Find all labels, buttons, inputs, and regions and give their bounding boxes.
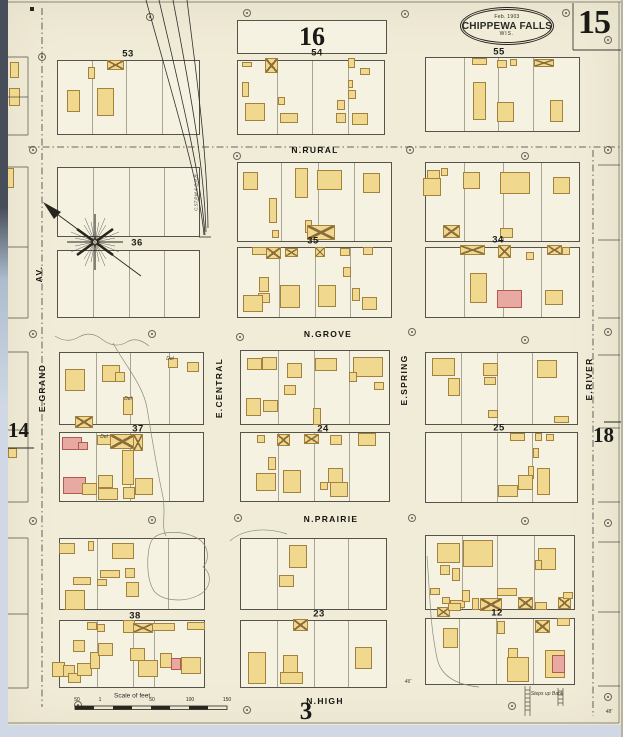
block-number-53: 53	[122, 49, 134, 60]
frame-building	[257, 435, 265, 443]
corner-marker-icon	[146, 13, 154, 21]
frame-building	[328, 468, 343, 483]
block-number-25: 25	[493, 423, 505, 434]
outbuilding-x	[547, 245, 562, 255]
brick-building	[78, 442, 88, 450]
frame-building	[472, 598, 479, 610]
outbuilding-x	[443, 225, 460, 238]
frame-building	[498, 485, 518, 497]
frame-building	[269, 198, 277, 223]
frame-building	[545, 290, 563, 305]
lot-line	[464, 248, 465, 317]
outbuilding-x	[133, 623, 153, 633]
sheet-number: 15	[578, 4, 610, 42]
frame-building	[247, 358, 262, 370]
frame-building	[330, 482, 348, 497]
lot-line	[461, 353, 462, 424]
corner-marker-icon	[406, 146, 414, 154]
outbuilding-x	[304, 434, 319, 444]
corner-marker-icon	[562, 9, 570, 17]
frame-building	[463, 540, 493, 567]
outbuilding-x	[498, 245, 511, 258]
lot-line	[164, 168, 165, 236]
lot-line	[532, 353, 533, 424]
frame-building	[348, 58, 355, 68]
frame-building	[443, 628, 458, 648]
lot-line	[541, 248, 542, 317]
lot-line	[459, 619, 460, 684]
frame-building	[497, 102, 514, 122]
brick-building	[552, 655, 565, 673]
corner-marker-icon	[401, 10, 409, 18]
street-label-n-rural: N.RURAL	[291, 145, 338, 155]
frame-building	[363, 173, 380, 193]
frame-building	[259, 277, 269, 292]
lot-line	[314, 621, 315, 687]
frame-building	[343, 267, 351, 277]
frame-building	[98, 475, 113, 488]
corner-marker-icon	[521, 152, 529, 160]
block-number-37: 37	[132, 424, 144, 435]
dwelling-note: Del	[124, 396, 132, 402]
frame-building	[430, 588, 440, 595]
frame-building	[352, 288, 360, 301]
frame-building	[473, 82, 486, 120]
block-number-35: 35	[307, 236, 319, 247]
street-label-e-spring: E.SPRING	[399, 354, 409, 405]
frame-building	[510, 433, 525, 441]
outbuilding-x	[266, 247, 281, 259]
frame-building	[278, 97, 285, 105]
frame-building	[360, 68, 370, 75]
frame-building	[374, 382, 384, 390]
lot-line	[164, 251, 165, 317]
map-state: WIS.	[500, 32, 515, 38]
outbuilding-x	[293, 619, 308, 631]
lot-line	[277, 539, 278, 609]
frame-building	[246, 398, 261, 416]
frame-building	[87, 622, 97, 630]
frame-building	[289, 545, 307, 568]
outbuilding-x	[107, 60, 124, 70]
outbuilding-x	[534, 59, 554, 67]
frame-building	[256, 473, 276, 491]
frame-building	[8, 448, 17, 458]
street-label-e-grand: E.GRAND	[37, 364, 47, 412]
block-number-23: 23	[313, 609, 325, 620]
lot-line	[277, 621, 278, 687]
frame-building	[553, 177, 570, 194]
frame-building	[73, 577, 91, 585]
corner-marker-icon	[148, 330, 156, 338]
lot-line	[354, 163, 355, 241]
scale-caption: Scale of feet.	[114, 693, 152, 700]
frame-building	[287, 363, 302, 378]
dimension-note: 48'	[606, 709, 613, 715]
frame-building	[497, 588, 517, 596]
corner-marker-icon	[604, 519, 612, 527]
frame-building	[9, 88, 20, 106]
outbuilding-x	[265, 58, 278, 73]
lot-line	[533, 58, 534, 131]
outbuilding-x	[110, 434, 135, 449]
lot-line	[349, 433, 350, 501]
lot-line	[93, 251, 94, 317]
frame-building	[122, 450, 134, 485]
block-number-34: 34	[492, 235, 504, 246]
frame-building	[537, 360, 557, 378]
frame-building	[268, 457, 276, 470]
lot-line	[350, 248, 351, 317]
frame-building	[315, 358, 337, 371]
scale-tick: 50	[74, 697, 80, 703]
frame-building	[67, 90, 80, 112]
frame-building	[125, 568, 135, 578]
outbuilding-x	[315, 247, 325, 257]
frame-building	[112, 543, 134, 559]
corner-marker-icon	[233, 152, 241, 160]
frame-building	[349, 372, 357, 382]
lot-line	[162, 61, 163, 134]
corner-marker-icon	[236, 333, 244, 341]
lot-line	[348, 621, 349, 687]
adjacent-sheet-top: 16	[299, 22, 325, 52]
lot-line	[315, 248, 316, 317]
street-label-n-prairie: N.PRAIRIE	[304, 514, 359, 524]
frame-building	[535, 560, 542, 570]
frame-building	[355, 647, 372, 669]
frame-building	[484, 377, 496, 385]
lot-line	[349, 351, 350, 424]
adjacent-sheet-bottom: 3	[300, 698, 313, 726]
outbuilding-x	[535, 620, 550, 633]
frame-building	[317, 170, 342, 190]
frame-building	[550, 100, 563, 122]
outbuilding-x	[75, 416, 93, 428]
frame-building	[82, 483, 97, 495]
frame-building	[272, 230, 279, 238]
lot-line	[348, 539, 349, 609]
block-number-55: 55	[493, 47, 505, 58]
corner-marker-icon	[38, 53, 46, 61]
sheet-edge-bottom	[0, 725, 623, 737]
outbuilding-x	[277, 434, 290, 446]
frame-building	[448, 378, 460, 396]
lot-line	[281, 163, 282, 241]
lot-line	[97, 539, 98, 609]
frame-building	[348, 90, 356, 99]
frame-building	[563, 592, 573, 599]
frame-building	[497, 621, 505, 634]
lot-line	[312, 61, 313, 134]
brick-building	[171, 658, 181, 670]
frame-building	[262, 357, 277, 370]
frame-building	[126, 582, 139, 597]
frame-building	[537, 468, 550, 495]
street-label-e-river: E.RIVER	[584, 357, 594, 400]
adjacent-sheet-left: 14	[8, 418, 29, 443]
frame-building	[295, 168, 308, 198]
frame-building	[115, 372, 125, 382]
scale-tick: 100	[186, 697, 194, 703]
frame-building	[245, 103, 265, 121]
frame-building	[432, 358, 455, 376]
frame-building	[313, 408, 321, 425]
corner-marker-icon	[29, 146, 37, 154]
frame-building	[488, 410, 498, 418]
outbuilding-x	[460, 245, 485, 255]
lot-line	[93, 168, 94, 236]
frame-building	[535, 602, 547, 610]
frame-building	[320, 482, 328, 490]
scale-tick: 150	[223, 697, 231, 703]
frame-building	[452, 568, 460, 581]
steps-note: Steps up Bank	[531, 691, 564, 697]
frame-building	[441, 168, 448, 176]
frame-building	[557, 618, 570, 626]
corner-marker-icon	[29, 517, 37, 525]
block-outline-36	[57, 250, 200, 318]
frame-building	[97, 624, 105, 632]
frame-building	[348, 80, 353, 88]
street-label-n-grove: N.GROVE	[304, 329, 352, 339]
frame-building	[352, 113, 368, 125]
frame-building	[97, 88, 114, 116]
frame-building	[500, 172, 530, 194]
frame-building	[463, 172, 480, 189]
frame-building	[353, 357, 383, 377]
frame-building	[318, 285, 336, 307]
lot-line	[168, 539, 169, 609]
frame-building	[243, 295, 263, 312]
scale-tick: 1	[99, 697, 102, 703]
frame-building	[280, 672, 303, 684]
frame-building	[187, 362, 199, 372]
street-label-e-central: E.CENTRAL	[214, 358, 224, 418]
corner-marker-icon	[408, 328, 416, 336]
frame-building	[462, 590, 470, 602]
frame-building	[138, 660, 158, 677]
frame-building	[123, 487, 135, 499]
frame-building	[497, 60, 507, 68]
frame-building	[358, 433, 376, 446]
frame-building	[363, 247, 373, 255]
frame-building	[437, 543, 460, 563]
corner-marker-icon	[243, 9, 251, 17]
frame-building	[283, 470, 301, 493]
lot-line	[464, 58, 465, 131]
frame-building	[135, 478, 153, 495]
frame-building	[242, 62, 252, 67]
frame-building	[470, 273, 487, 303]
frame-building	[65, 369, 85, 391]
corner-marker-icon	[521, 336, 529, 344]
block-number-36: 36	[131, 238, 143, 249]
lot-line	[278, 351, 279, 424]
frame-building	[280, 285, 300, 308]
frame-building	[65, 590, 85, 610]
corner-marker-icon	[604, 146, 612, 154]
frame-building	[526, 252, 534, 260]
frame-building	[73, 640, 85, 652]
frame-building	[423, 178, 441, 196]
block-number-24: 24	[317, 424, 329, 435]
frame-building	[242, 82, 249, 97]
corner-marker-icon	[604, 693, 612, 701]
corner-marker-icon	[604, 328, 612, 336]
sanborn-map-sheet: 535455363534372425382312N.RURALN.GROVEN.…	[0, 0, 623, 737]
corner-marker-icon	[148, 516, 156, 524]
frame-building	[554, 416, 569, 423]
frame-building	[337, 100, 345, 110]
frame-building	[507, 657, 529, 682]
lot-line	[533, 619, 534, 684]
frame-building	[336, 113, 346, 123]
block-outline-36	[57, 167, 200, 237]
railroad-label: C.ST.P.M.& O.R.R.	[194, 173, 199, 211]
corner-marker-icon	[408, 514, 416, 522]
dimension-note: 46'	[405, 679, 412, 685]
frame-building	[10, 62, 19, 78]
frame-building	[330, 435, 342, 445]
lot-line	[534, 536, 535, 609]
frame-building	[535, 433, 542, 441]
lot-line	[169, 433, 170, 501]
frame-building	[472, 58, 487, 65]
frame-building	[88, 67, 95, 79]
map-city: CHIPPEWA FALLS	[462, 21, 552, 32]
lot-line	[96, 353, 97, 424]
lot-line	[129, 251, 130, 317]
map-date: Feb. 1903	[494, 15, 519, 21]
dwelling-note: Del	[100, 434, 108, 440]
frame-building	[263, 400, 278, 412]
corner-marker-icon	[521, 517, 529, 525]
frame-building	[518, 475, 533, 490]
outbuilding-x	[285, 248, 298, 257]
street-label-av: AV.	[34, 266, 44, 283]
frame-building	[187, 622, 205, 630]
lot-line	[314, 539, 315, 609]
outbuilding-x	[133, 434, 143, 451]
frame-building	[279, 575, 294, 587]
frame-building	[546, 434, 554, 441]
frame-building	[88, 541, 94, 551]
frame-building	[59, 543, 75, 554]
lot-line	[541, 163, 542, 241]
publisher-oval: Feb. 1903 CHIPPEWA FALLS WIS.	[462, 9, 552, 43]
frame-building	[340, 248, 350, 256]
frame-building	[97, 579, 107, 586]
corner-marker-icon	[243, 706, 251, 714]
frame-building	[362, 297, 377, 310]
outbuilding-x	[518, 597, 533, 609]
frame-building	[440, 565, 450, 575]
frame-building	[181, 657, 201, 674]
adjacent-sheet-right: 18	[593, 423, 614, 448]
frame-building	[510, 59, 517, 66]
frame-building	[98, 643, 113, 656]
frame-building	[448, 603, 461, 611]
frame-building	[284, 385, 296, 395]
frame-building	[152, 623, 175, 631]
lot-line	[129, 168, 130, 236]
dwelling-note: Del	[166, 356, 174, 362]
corner-marker-icon	[234, 514, 242, 522]
frame-building	[483, 363, 498, 376]
sheet-edge-left	[0, 0, 8, 737]
frame-building	[100, 570, 120, 578]
frame-building	[280, 113, 298, 123]
block-outline-23	[240, 538, 387, 610]
brick-building	[497, 290, 522, 308]
frame-building	[533, 448, 539, 458]
map-content-layer: 535455363534372425382312N.RURALN.GROVEN.…	[0, 0, 623, 737]
frame-building	[243, 172, 258, 190]
corner-marker-icon	[508, 702, 516, 710]
frame-building	[98, 488, 118, 500]
block-number-12: 12	[491, 608, 503, 619]
corner-marker-icon	[29, 330, 37, 338]
lot-line	[461, 433, 462, 502]
lot-line	[126, 61, 127, 134]
frame-building	[562, 247, 570, 255]
block-number-38: 38	[129, 611, 141, 622]
frame-building	[248, 652, 266, 684]
